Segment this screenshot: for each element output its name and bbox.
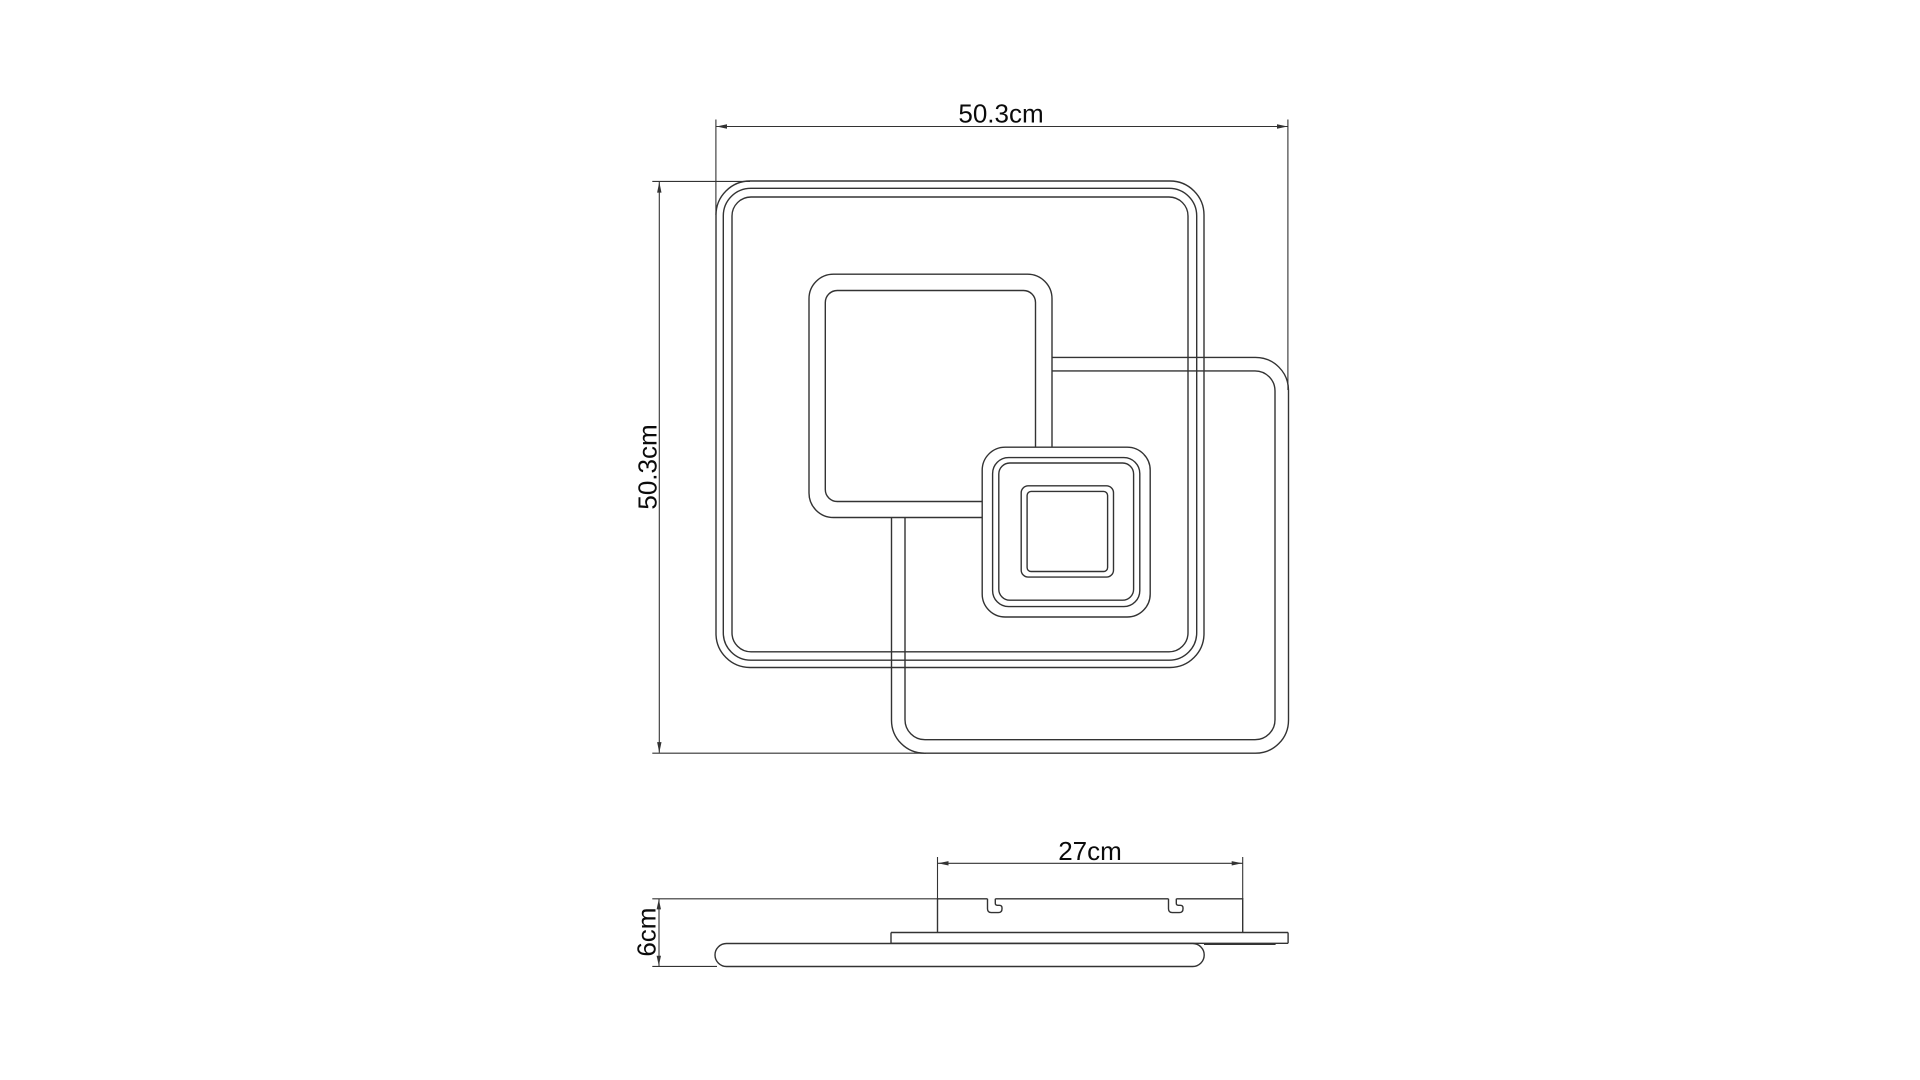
svg-text:50.3cm: 50.3cm	[633, 424, 663, 509]
svg-text:27cm: 27cm	[1058, 836, 1122, 866]
svg-text:6cm: 6cm	[631, 908, 661, 957]
svg-text:50.3cm: 50.3cm	[958, 99, 1043, 129]
